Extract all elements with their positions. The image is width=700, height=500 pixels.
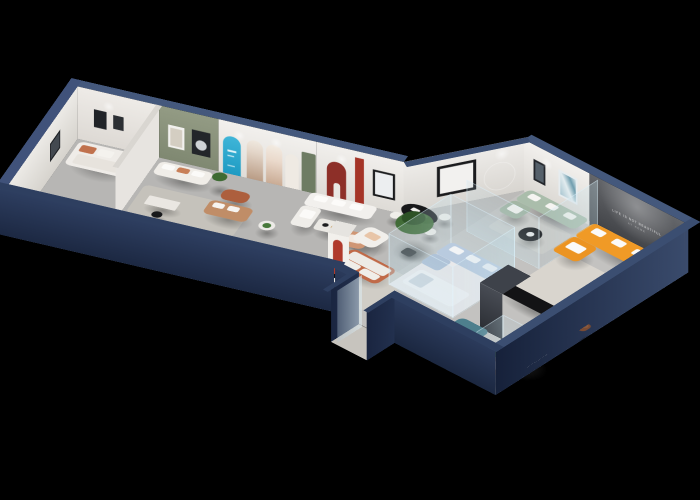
wall-slogan-line1: LIFE IS NOT BEAUTIFUL <box>612 209 661 238</box>
showroom-floorplan-render: LIFE IS NOT BEAUTIFULAT HOME <box>0 0 700 500</box>
